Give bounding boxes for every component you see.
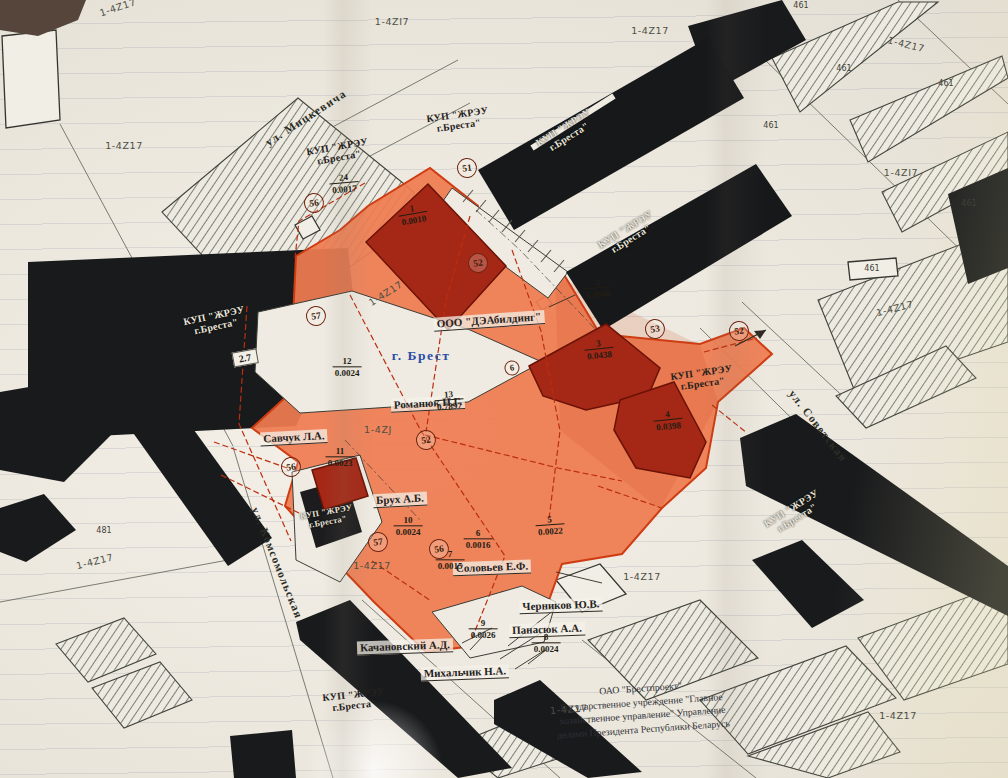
boundary-point-marker: 52 xyxy=(415,429,438,452)
parcel-area-fraction: 60.0016 xyxy=(464,529,493,550)
block-number-label: 461 xyxy=(836,65,851,74)
parcel-area-fraction: 90.0026 xyxy=(469,619,498,640)
parcel-area-value: 0.0010 xyxy=(399,211,429,228)
boundary-point-marker: 57 xyxy=(367,531,390,554)
parcel-area-fraction: 80.0024 xyxy=(532,633,561,654)
org-parcel-label: КУП "ЖРЭУ г.Бреста" xyxy=(299,503,355,531)
owner-label: Качановский А.Д. xyxy=(357,638,453,656)
org-parcel-label: КУП "ЖРЭУ г.Бреста" xyxy=(762,487,827,539)
zone-code-label: 1-4ZI7 xyxy=(884,168,918,179)
block-number-label: 461 xyxy=(938,80,953,89)
city-name-label: г. Брест xyxy=(392,348,451,363)
boundary-point-marker: 52 xyxy=(467,252,490,275)
parcel-area-fraction: 20.0040 xyxy=(583,277,614,301)
zone-code-label: 1-4Z17 xyxy=(886,35,925,54)
boundary-point-marker: 57 xyxy=(305,305,328,328)
height-mark-label: 2.7 xyxy=(232,348,259,367)
zone-code-label: 1-4Z17 xyxy=(367,280,405,309)
boundary-point-marker: 52 xyxy=(728,320,751,343)
block-number-label: 461 xyxy=(961,200,976,209)
org-parcel-label: КУП "ЖРЭУ г.Бреста" xyxy=(670,363,735,394)
zone-code-label: 1-4Z17 xyxy=(875,299,914,318)
owner-label: Черников Ю.В. xyxy=(519,597,603,614)
street-name: ул. Мицкевича xyxy=(263,87,349,149)
parcel-area-value: 0.0024 xyxy=(333,366,362,378)
owner-label: Соловьев Е.Ф. xyxy=(453,559,532,576)
parcel-area-fraction: 10.0010 xyxy=(397,202,429,228)
block-number-label: 481 xyxy=(96,527,111,536)
org-parcel-label: КУП "ЖРЭУ г.Бреста" xyxy=(596,208,661,260)
boundary-point-marker: 56 xyxy=(280,456,303,479)
parcel-area-value: 0.0040 xyxy=(584,286,614,301)
org-parcel-label: КУП "ЖРЭУ г.Бреста" xyxy=(182,304,247,339)
org-parcel-label: КУП "ЖРЭУ г.Бреста" xyxy=(322,686,386,715)
parcel-area-fraction: 130.7897 xyxy=(434,389,464,412)
zone-code-label: 1-4Z17 xyxy=(879,711,917,722)
org-attribution-block: ОАО "Брестпроект"Государственное учрежде… xyxy=(554,676,730,743)
parcel-area-value: 0.0022 xyxy=(536,523,566,537)
zone-code-label: 1-4Z17 xyxy=(353,561,391,572)
parcel-area-value: 0.0017 xyxy=(330,181,360,196)
parcel-area-fraction: 40.0398 xyxy=(653,409,684,433)
boundary-point-marker: 51 xyxy=(456,157,479,180)
owner-label: Савчук Л.А. xyxy=(260,429,328,447)
parcel-area-value: 0.0015 xyxy=(436,559,465,571)
owner-label: Михальчик Н.А. xyxy=(421,664,510,681)
zone-code-label: 1-4ZJ xyxy=(364,425,392,436)
parcel-area-value: 0.0024 xyxy=(532,642,561,654)
parcel-area-value: 0.0398 xyxy=(654,418,684,433)
zone-code-label: 1-4Z17 xyxy=(98,0,137,19)
owner-label: Брух А.Б. xyxy=(373,491,427,508)
parcel-area-fraction: 120.0024 xyxy=(333,357,362,378)
parcel-area-value: 0.0026 xyxy=(469,628,498,640)
parcel-number: 10 xyxy=(401,516,416,525)
org-parcel-label: КУП "ЖРЭУ г.Бреста" xyxy=(426,105,491,136)
zone-code-label: 1-4ZI7 xyxy=(375,17,409,28)
cadastral-map-photo: ул. Мицкевичаул. Комсомольскаяул. Советс… xyxy=(0,0,1008,778)
parcel-area-value: 0.0016 xyxy=(464,538,493,550)
parcel-number: 8 xyxy=(541,633,552,642)
parcel-area-value: 0.0024 xyxy=(394,525,423,537)
boundary-point-marker: 53 xyxy=(644,318,667,341)
zone-code-label: 1-4Z17 xyxy=(631,26,669,37)
parcel-number: 11 xyxy=(333,447,348,456)
parcel-area-fraction: 240.0017 xyxy=(329,172,360,196)
org-parcel-label: КУП "ЖРЭУ г.Бреста" xyxy=(534,106,599,158)
street-name: ул. Советская xyxy=(786,387,850,464)
owner-label: ООО "ДЭАбилдинг" xyxy=(433,310,544,332)
org-parcel-label: КУП "ЖРЭУ г.Бреста" xyxy=(305,136,370,169)
parcel-area-value: 0.0438 xyxy=(585,347,615,362)
parcel-area-fraction: 110.0023 xyxy=(326,447,355,468)
boundary-point-marker: 6 xyxy=(504,360,521,377)
boundary-point-marker: 56 xyxy=(303,192,326,215)
parcel-number: 12 xyxy=(340,357,355,366)
block-number-label: 461 xyxy=(763,122,778,131)
block-number-label: 461 xyxy=(793,2,808,11)
parcel-area-fraction: 100.0024 xyxy=(394,516,423,537)
zone-code-label: 1-4Z17 xyxy=(75,552,114,571)
street-name: ул. Комсомольская xyxy=(249,505,306,620)
parcel-area-value: 0.7897 xyxy=(435,398,465,412)
parcel-area-fraction: 50.0022 xyxy=(535,514,565,537)
parcel-number: 6 xyxy=(473,529,484,538)
parcel-number: 9 xyxy=(478,619,489,628)
labels-layer: ул. Мицкевичаул. Комсомольскаяул. Советс… xyxy=(0,0,1008,778)
parcel-area-fraction: 30.0438 xyxy=(584,338,615,362)
zone-code-label: 1-4Z17 xyxy=(105,141,143,152)
parcel-area-value: 0.0023 xyxy=(326,456,355,468)
block-number-label: 461 xyxy=(864,265,879,274)
zone-code-label: 1-4Z17 xyxy=(623,572,661,583)
